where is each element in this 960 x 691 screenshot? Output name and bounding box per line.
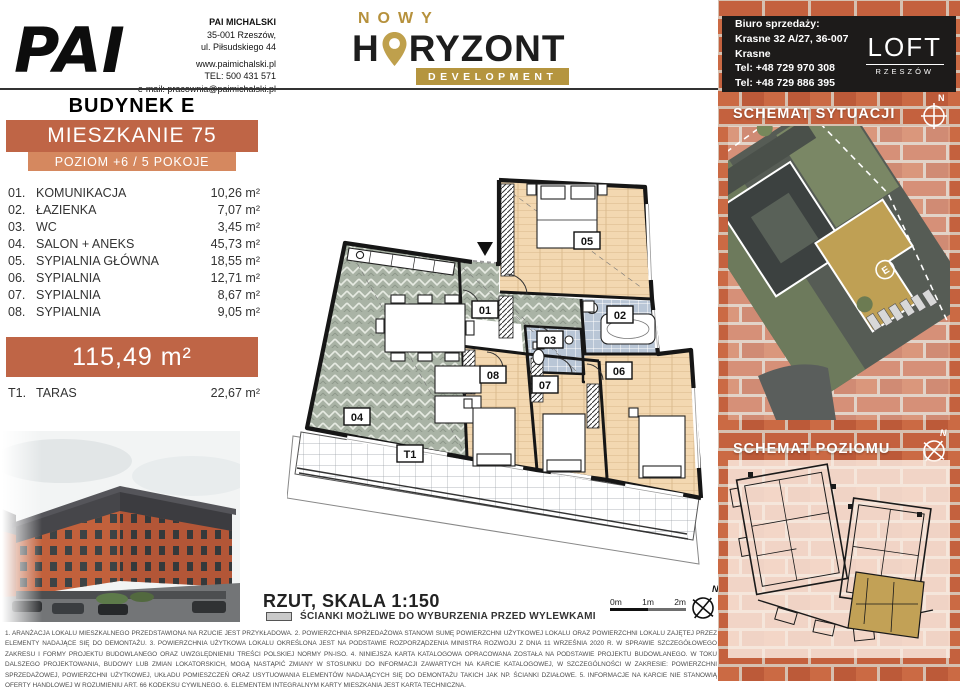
architect-address2: ul. Piłsudskiego 44 xyxy=(96,41,276,54)
room-area: 18,55 m² xyxy=(211,254,260,268)
loft-name: LOFT xyxy=(866,32,944,65)
loft-city: RZESZÓW xyxy=(866,67,944,76)
plan-title: RZUT, SKALA 1:150 xyxy=(263,591,440,612)
room-name: SYPIALNIA xyxy=(36,288,218,302)
loft-logo: LOFT RZESZÓW xyxy=(866,32,956,76)
label-07: 07 xyxy=(539,380,551,392)
room-row: 07.SYPIALNIA8,67 m² xyxy=(8,286,260,303)
building-title: BUDYNEK E xyxy=(0,95,264,118)
room-name: ŁAZIENKA xyxy=(36,203,218,217)
label-06: 06 xyxy=(613,366,625,378)
sidebar: Biuro sprzedaży: Krasne 32 A/27, 36-007 … xyxy=(718,0,960,681)
room-no: 07. xyxy=(8,288,36,302)
label-04: 04 xyxy=(351,412,364,424)
room-name: SYPIALNIA xyxy=(36,271,211,285)
footnotes: 1. ARANŻACJA LOKALU MIESZKALNEGO PRZEDST… xyxy=(5,629,717,691)
architect-address1: 35-001 Rzeszów, xyxy=(96,29,276,42)
room-no: 04. xyxy=(8,237,36,251)
legend-label: ŚCIANKI MOŻLIWE DO WYBURZENIA PRZED WYLE… xyxy=(300,611,596,622)
site-map: E xyxy=(728,126,950,420)
sales-phone2[interactable]: Tel: +48 729 886 395 xyxy=(735,76,866,91)
room-area: 7,07 m² xyxy=(218,203,260,217)
label-01: 01 xyxy=(479,305,491,317)
level-schematic xyxy=(728,460,950,658)
room-area: 10,26 m² xyxy=(211,186,260,200)
room-row: 06.SYPIALNIA12,71 m² xyxy=(8,269,260,286)
sales-address: Krasne 32 A/27, 36-007 Krasne xyxy=(735,32,866,61)
highlighted-apartment xyxy=(848,572,924,638)
terrace-name: TARAS xyxy=(36,386,211,400)
scale-bar: 0m 1m 2m xyxy=(610,597,686,611)
room-no: 08. xyxy=(8,305,36,319)
room-no: 03. xyxy=(8,220,36,234)
brand-h: H xyxy=(352,30,380,67)
location-pin-icon xyxy=(381,31,408,67)
architect-name: PAI MICHALSKI xyxy=(96,16,276,29)
sales-phone1[interactable]: Tel: +48 729 970 308 xyxy=(735,61,866,76)
level-section-title: SCHEMAT POZIOMU xyxy=(733,441,890,457)
label-05: 05 xyxy=(581,236,593,248)
level-badge: POZIOM +6 / 5 POKOJE xyxy=(28,152,236,171)
room-area: 45,73 m² xyxy=(211,237,260,251)
room-name: SYPIALNIA GŁÓWNA xyxy=(36,254,211,268)
room-name: WC xyxy=(36,220,218,234)
architect-contact: PAI MICHALSKI 35-001 Rzeszów, ul. Piłsud… xyxy=(96,16,276,96)
floor-plan: 01 02 03 04 05 06 07 08 T1 xyxy=(287,168,717,598)
room-name: SALON + ANEKS xyxy=(36,237,211,251)
room-area: 12,71 m² xyxy=(211,271,260,285)
brand-nowy: NOWY xyxy=(352,10,662,28)
terrace-row: T1.TARAS22,67 m² xyxy=(8,384,260,401)
room-row: 04.SALON + ANEKS45,73 m² xyxy=(8,235,260,252)
situation-section-title: SCHEMAT SYTUACJI xyxy=(733,106,895,122)
room-row: 03.WC3,45 m² xyxy=(8,218,260,235)
room-name: SYPIALNIA xyxy=(36,305,218,319)
scale-segment-2 xyxy=(648,608,686,611)
room-no: 06. xyxy=(8,271,36,285)
room-area: 3,45 m² xyxy=(218,220,260,234)
room-area: 8,67 m² xyxy=(218,288,260,302)
label-03: 03 xyxy=(544,335,556,347)
level-north: N xyxy=(940,428,947,438)
sales-office-box: Biuro sprzedaży: Krasne 32 A/27, 36-007 … xyxy=(722,16,956,92)
brand-development: DEVELOPMENT xyxy=(416,68,569,85)
header-divider xyxy=(0,88,718,90)
room-list: 01.KOMUNIKACJA10,26 m² 02.ŁAZIENKA7,07 m… xyxy=(8,184,260,320)
scale-1: 1m xyxy=(642,597,654,607)
room-no: 05. xyxy=(8,254,36,268)
room-no: 02. xyxy=(8,203,36,217)
architect-www[interactable]: www.paimichalski.pl xyxy=(96,58,276,71)
scale-2: 2m xyxy=(674,597,686,607)
brand-ryzont: RYZONT xyxy=(409,30,566,67)
room-no: 01. xyxy=(8,186,36,200)
scale-0: 0m xyxy=(610,597,622,607)
sales-title: Biuro sprzedaży: xyxy=(735,17,866,32)
label-08: 08 xyxy=(487,370,499,382)
situation-north: N xyxy=(938,93,945,103)
room-area: 9,05 m² xyxy=(218,305,260,319)
demolition-wall-swatch xyxy=(266,612,292,621)
room-row: 01.KOMUNIKACJA10,26 m² xyxy=(8,184,260,201)
apartment-title-badge: MIESZKANIE 75 xyxy=(6,120,258,152)
total-area-badge: 115,49 m² xyxy=(6,337,258,377)
developer-logo: NOWY HRYZONT DEVELOPMENT xyxy=(352,10,662,85)
label-02: 02 xyxy=(614,310,626,322)
building-photo xyxy=(2,431,240,622)
label-t1: T1 xyxy=(404,449,417,461)
entry-arrow-icon xyxy=(477,242,493,256)
terrace-area: 22,67 m² xyxy=(211,386,260,400)
plan-legend: ŚCIANKI MOŻLIWE DO WYBURZENIA PRZED WYLE… xyxy=(266,611,596,622)
architect-tel: TEL: 500 431 571 xyxy=(96,70,276,83)
brand-horyzont: HRYZONT xyxy=(352,29,662,67)
room-row: 02.ŁAZIENKA7,07 m² xyxy=(8,201,260,218)
scale-segment-1 xyxy=(610,608,648,611)
room-row: 05.SYPIALNIA GŁÓWNA18,55 m² xyxy=(8,252,260,269)
terrace-no: T1. xyxy=(8,386,36,400)
room-row: 08.SYPIALNIA9,05 m² xyxy=(8,303,260,320)
north-compass-icon: N xyxy=(686,582,722,624)
room-name: KOMUNIKACJA xyxy=(36,186,211,200)
